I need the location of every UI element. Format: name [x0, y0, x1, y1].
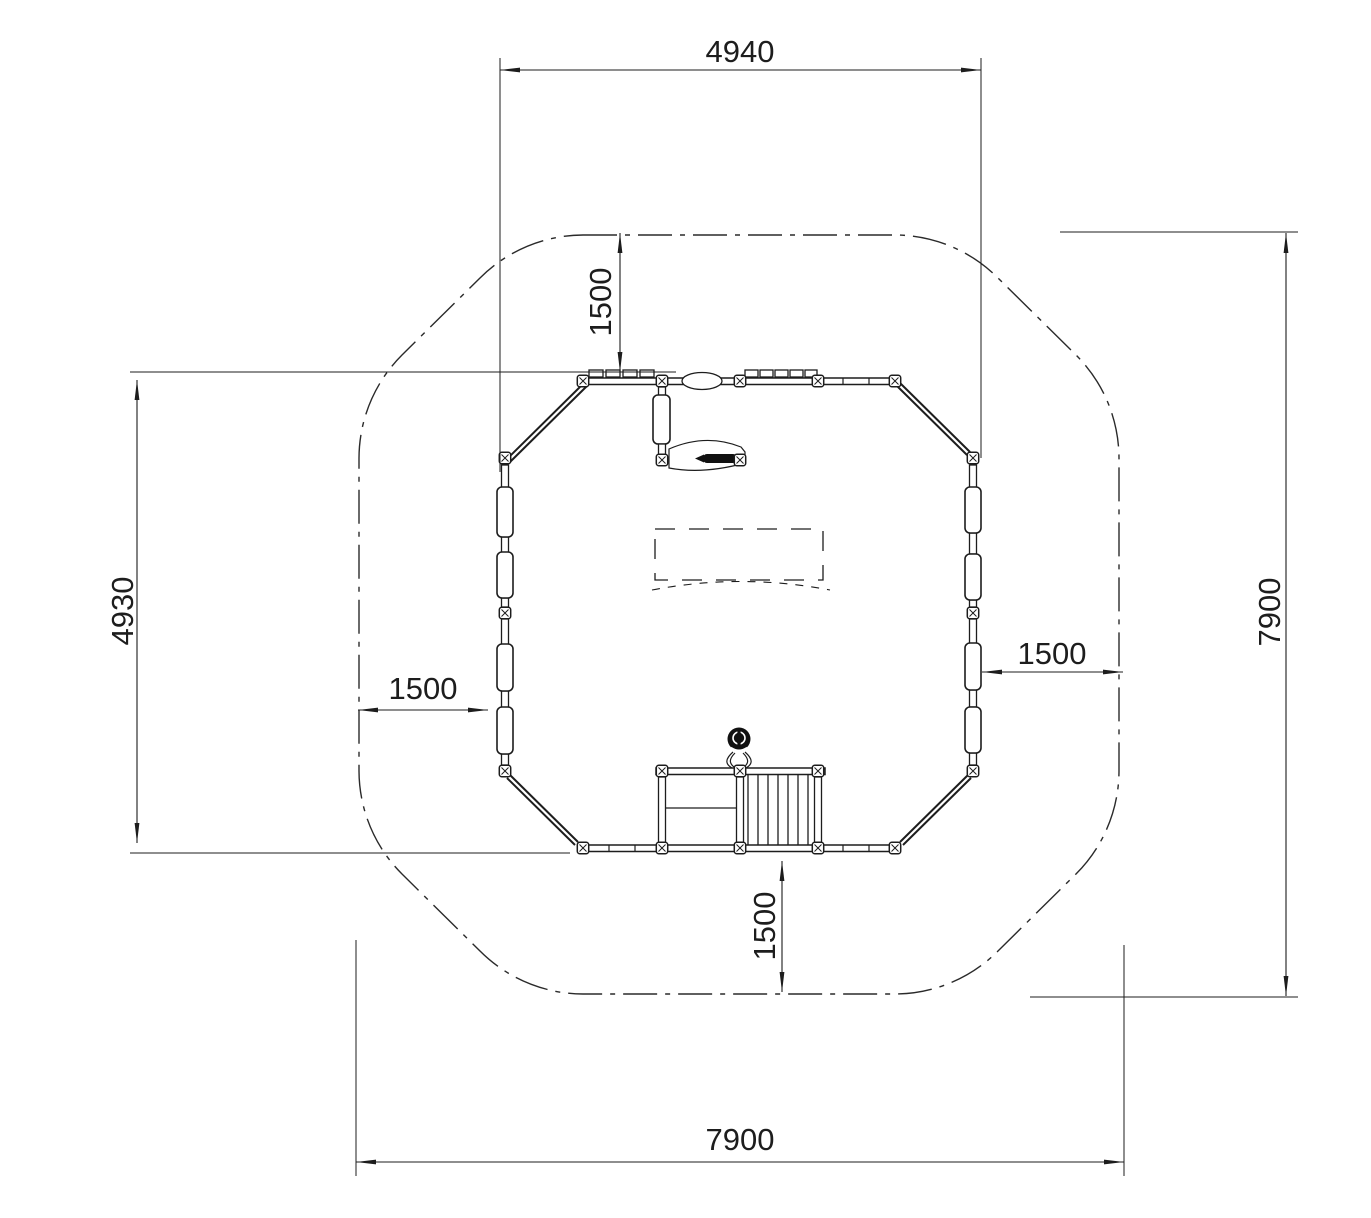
post-icon: [889, 842, 900, 853]
deck-plank: [745, 370, 758, 377]
safety-zone-outline: [359, 235, 1119, 994]
dimension-zone-depth: 7900: [1030, 232, 1298, 997]
side-panel: [965, 487, 981, 533]
post-icon: [656, 454, 667, 465]
side-panel: [965, 554, 981, 600]
post-icon: [499, 765, 510, 776]
post-icon: [656, 375, 667, 386]
play-handle: [703, 454, 737, 463]
dimension-label-clearance-left: 1500: [389, 671, 458, 706]
dimension-overall-depth: 4930: [105, 372, 676, 853]
dimension-label-zone-depth: 7900: [1252, 578, 1287, 647]
side-panel: [497, 552, 513, 598]
side-panel: [497, 707, 513, 754]
dimension-label-clearance-top: 1500: [583, 268, 618, 337]
upper-level-hidden-outline: [652, 529, 830, 590]
post-icon: [812, 765, 823, 776]
safety-zone-boundary: [359, 235, 1119, 994]
side-panel: [497, 644, 513, 691]
dimension-label-clearance-bottom: 1500: [747, 892, 782, 961]
dimension-label-overall-width: 4940: [706, 34, 775, 69]
post-icon: [734, 454, 745, 465]
dimension-clearance-top: 1500: [583, 233, 620, 372]
corner-rail-northwest: [507, 382, 588, 462]
post-icon: [734, 375, 745, 386]
deck-plank: [775, 370, 788, 377]
tower-platform: [656, 728, 825, 846]
post-icon: [656, 765, 667, 776]
plan-sheet: 4940 1500 4930 7900 1500 1500 1500 79: [0, 0, 1371, 1218]
post-icon: [734, 842, 745, 853]
post-icon: [656, 842, 667, 853]
corner-rail-southwest: [507, 775, 578, 845]
dimension-clearance-bottom: 1500: [747, 861, 782, 992]
deck-plank: [790, 370, 803, 377]
post-icon: [577, 375, 588, 386]
deck-plank: [640, 370, 654, 377]
dimension-clearance-right: 1500: [982, 636, 1123, 672]
post-icon: [812, 842, 823, 853]
equipment-structure: [497, 370, 981, 854]
dimension-clearance-left: 1500: [358, 671, 488, 710]
deck-plank: [623, 370, 637, 377]
plan-drawing: 4940 1500 4930 7900 1500 1500 1500 79: [0, 0, 1371, 1218]
dimension-overall-width: 4940: [500, 34, 981, 472]
play-handle-tip: [695, 455, 704, 463]
deck-plank: [606, 370, 620, 377]
dimension-zone-width: 7900: [356, 940, 1124, 1176]
dimension-label-zone-width: 7900: [706, 1122, 775, 1157]
side-panel: [965, 707, 981, 753]
steering-wheel-icon: [727, 728, 751, 769]
post-icon: [499, 607, 510, 618]
dimension-label-overall-depth: 4930: [105, 577, 140, 646]
post-icon: [812, 375, 823, 386]
post-icon: [577, 842, 588, 853]
play-counter-table: [682, 373, 722, 390]
post-icon: [889, 375, 900, 386]
side-panel: [497, 487, 513, 537]
corner-rail-southeast: [900, 775, 971, 845]
post-icon: [967, 452, 978, 463]
stairs: [748, 775, 808, 845]
interior-panel: [653, 395, 670, 444]
corner-rail-northeast: [897, 383, 970, 455]
post-icon: [734, 765, 745, 776]
post-icon: [967, 607, 978, 618]
post-icon: [967, 765, 978, 776]
dimension-label-clearance-right: 1500: [1018, 636, 1087, 671]
side-panel: [965, 643, 981, 690]
deck-plank: [760, 370, 773, 377]
deck-plank: [589, 370, 603, 377]
post-icon: [499, 452, 510, 463]
